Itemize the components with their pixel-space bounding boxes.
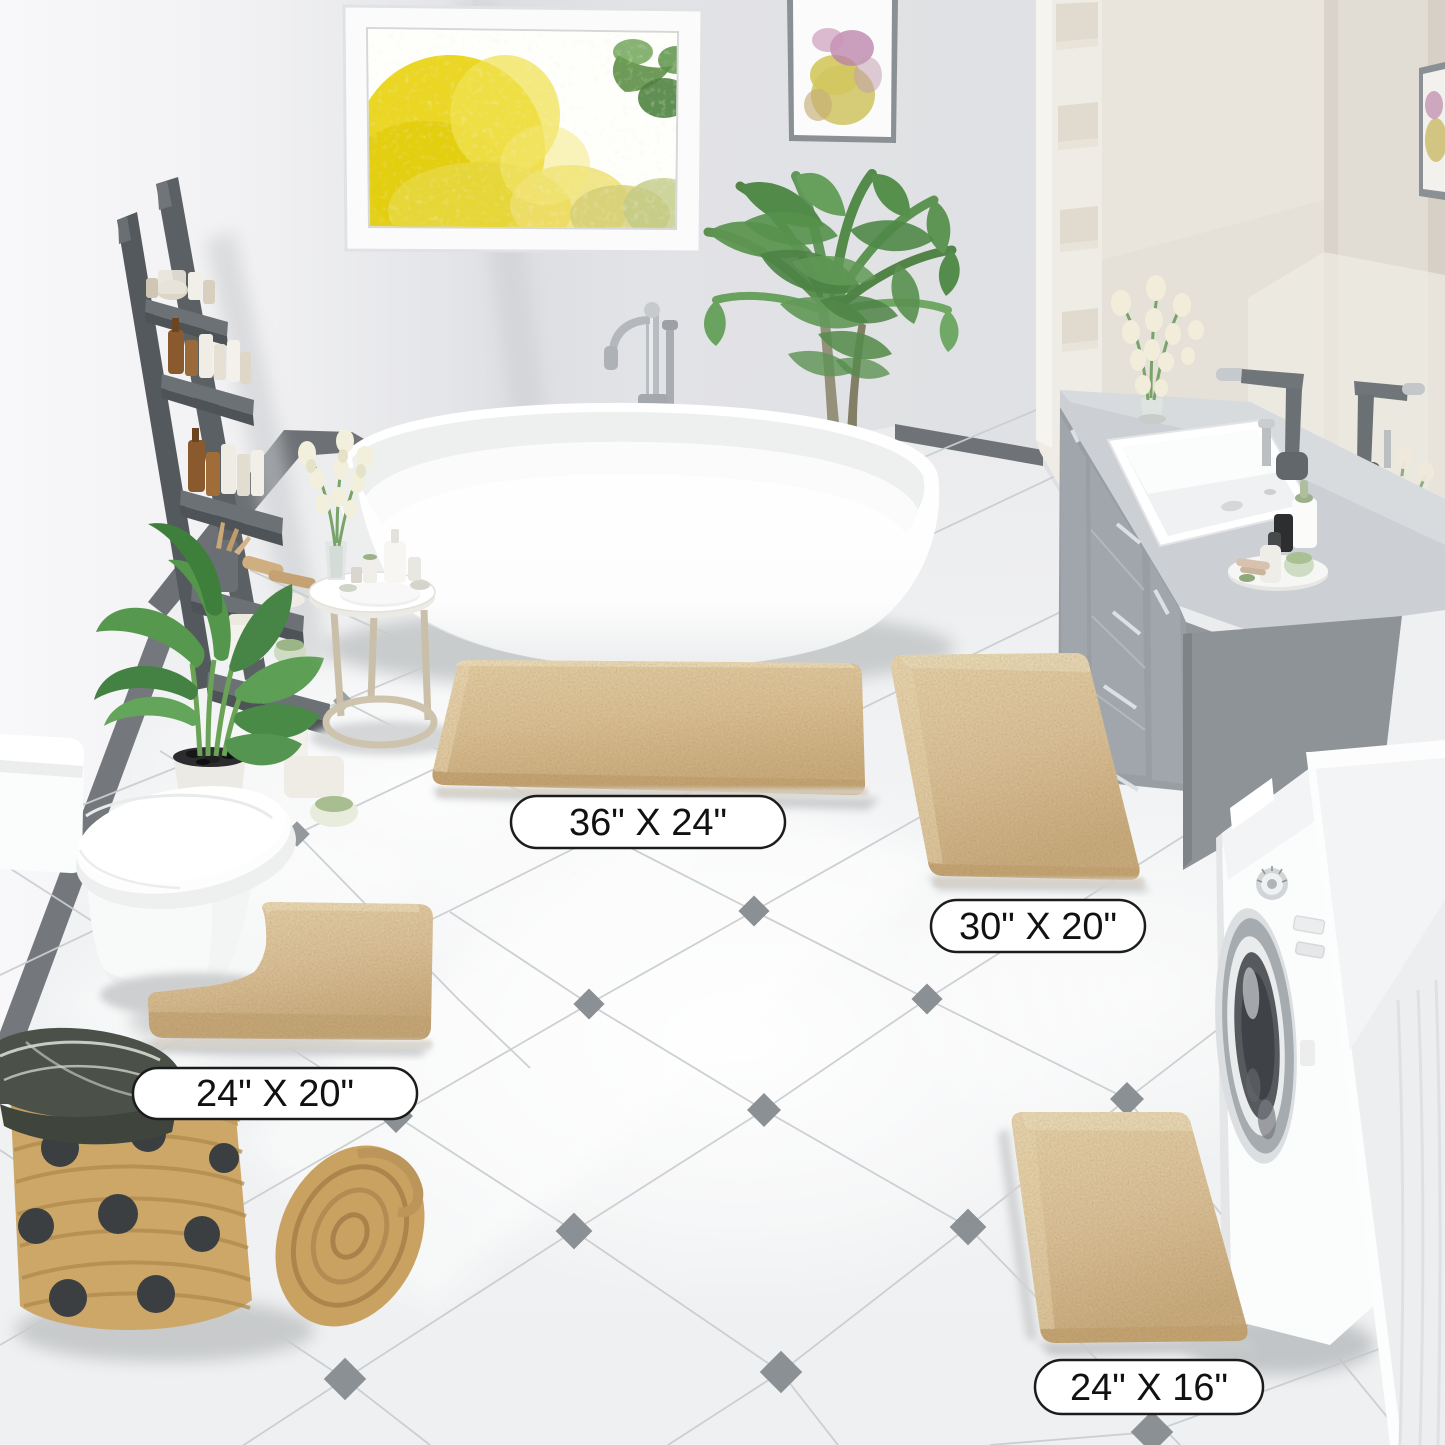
svg-text:24" X 16": 24" X 16" xyxy=(1070,1367,1228,1409)
svg-text:36" X 24": 36" X 24" xyxy=(569,802,727,844)
svg-text:24" X 20": 24" X 20" xyxy=(196,1073,354,1115)
svg-text:30" X 20": 30" X 20" xyxy=(959,906,1117,948)
